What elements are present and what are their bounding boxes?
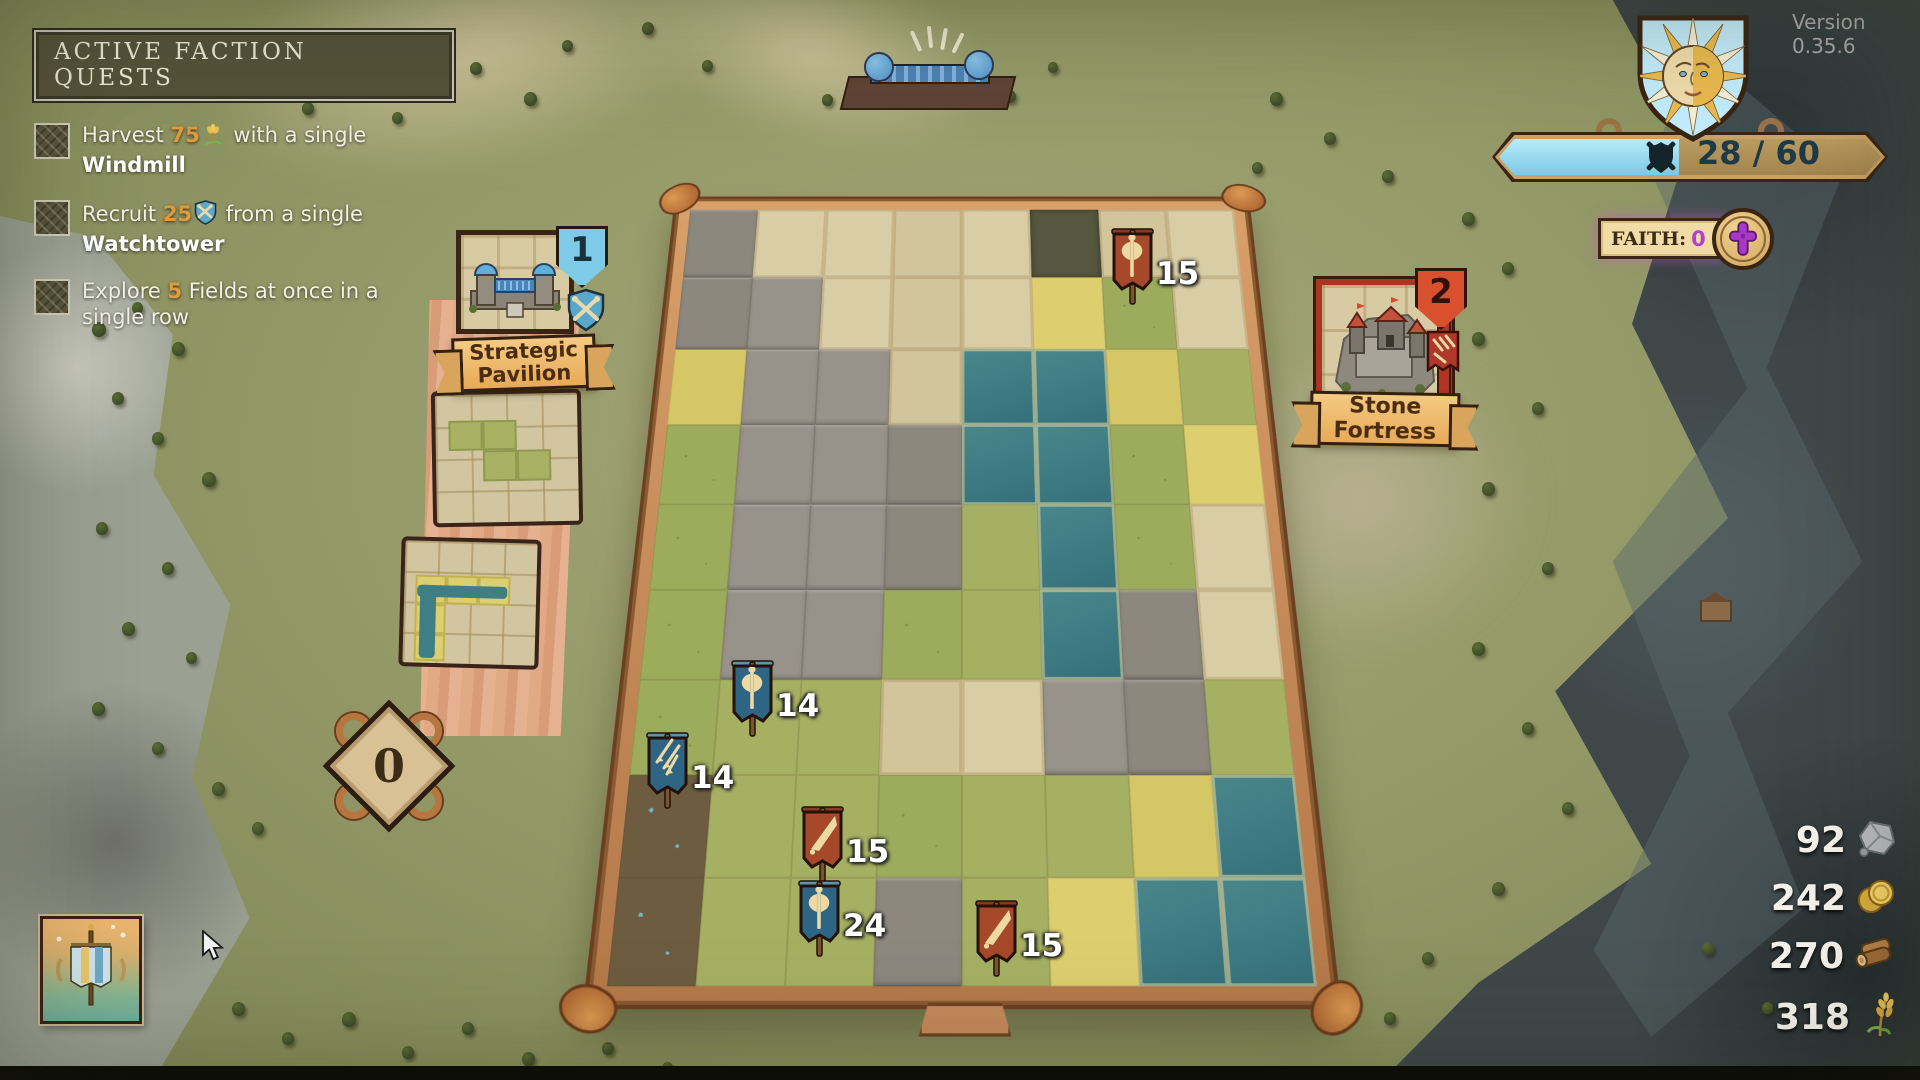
red-pennant-arrows-icon [1426, 330, 1460, 382]
board-tile-grass[interactable] [640, 589, 728, 679]
board-tile-unexplored[interactable] [753, 210, 826, 278]
unit-count: 14 [691, 760, 734, 796]
board-tile-water[interactable] [962, 425, 1038, 505]
quest-text: Explore [82, 279, 167, 303]
tree-icon [186, 652, 197, 664]
quest-text-block: Harvest 75 with a single Windmill [82, 123, 412, 178]
board-tile-mountain[interactable] [815, 349, 891, 425]
board-tile-mountain[interactable] [886, 425, 962, 505]
board-tile-mountain[interactable] [1123, 680, 1211, 776]
tree-icon [602, 1042, 614, 1055]
board-tile-water[interactable] [1036, 425, 1114, 505]
unit-count: 15 [1156, 256, 1199, 292]
tree-icon [172, 342, 185, 356]
board-tile-water[interactable] [962, 349, 1036, 425]
board-tile-grass[interactable] [962, 775, 1048, 877]
quest-amount: 5 [167, 279, 182, 303]
board-tile-mountain[interactable] [1118, 589, 1203, 679]
tree-icon [162, 562, 174, 575]
board-tile-camp[interactable] [607, 877, 705, 986]
board-tile-grass[interactable] [1045, 775, 1134, 877]
build-card-name: Stone Fortress [1313, 393, 1458, 446]
unit-banner-sword[interactable]: 15 [970, 892, 1080, 984]
unit-banner-axe[interactable]: 24 [793, 872, 903, 964]
letterbox-bar [0, 1066, 1920, 1080]
quest-checkbox[interactable] [34, 123, 70, 159]
tree-icon [282, 1032, 294, 1045]
board-tile-mountain[interactable] [884, 505, 962, 590]
tree-icon [462, 1022, 474, 1035]
board-tile-field[interactable] [1105, 349, 1183, 425]
unit-count: 15 [1020, 928, 1063, 964]
board-tile-unexplored[interactable] [822, 210, 894, 278]
quest-item-explore: Explore 5 Fields at once in a single row [34, 279, 454, 330]
resource-wheat: 318 [1775, 992, 1898, 1042]
tile-preview-river[interactable] [398, 536, 541, 670]
board-tile-unexplored[interactable] [888, 349, 962, 425]
blue-shield-clubs-icon [566, 288, 606, 338]
tile-queue-count: 0 [342, 719, 436, 813]
board-tile-unexplored[interactable] [962, 680, 1045, 776]
quest-text-block: Explore 5 Fields at once in a single row [82, 279, 412, 330]
tree-icon [252, 822, 264, 835]
axe-banner-icon [1106, 220, 1159, 308]
wood-log-icon [1852, 932, 1898, 980]
arrows-banner-icon [641, 724, 694, 812]
board-tile-unexplored[interactable] [1196, 589, 1284, 679]
resource-gold: 242 [1771, 874, 1898, 922]
quest-text: with a single [227, 123, 367, 147]
board-tile-unexplored[interactable] [962, 278, 1034, 350]
game-board [587, 0, 1337, 1005]
stone-icon [1854, 816, 1898, 864]
game-screen: 151414152415 ACTIVE FACTION QUESTS Harve… [0, 0, 1920, 1080]
board-tile-water[interactable] [1134, 877, 1229, 986]
quest-item-harvest: Harvest 75 with a single Windmill [34, 123, 454, 178]
board-tile-grass[interactable] [1204, 680, 1295, 776]
tree-icon [1562, 802, 1574, 815]
frame-crest [919, 1003, 1012, 1037]
quest-amount: 75 [171, 123, 200, 147]
resource-value: 270 [1769, 936, 1844, 977]
palace-building [838, 30, 1018, 120]
tree-icon [1422, 952, 1434, 965]
unit-banner-axe[interactable]: 15 [1106, 220, 1216, 312]
tree-icon [1532, 402, 1544, 415]
tree-icon [562, 40, 573, 52]
board-tile-grass[interactable] [1114, 505, 1197, 590]
tree-icon [152, 742, 164, 755]
unit-count: 24 [843, 908, 886, 944]
board-tile-grass[interactable] [1177, 349, 1257, 425]
board-grid [607, 210, 1317, 987]
wheat-icon [1858, 992, 1898, 1042]
tree-icon [212, 782, 225, 796]
tree-icon [1542, 562, 1554, 575]
board-tile-grass[interactable] [962, 589, 1043, 679]
tree-icon [202, 472, 216, 487]
resource-value: 92 [1796, 820, 1846, 861]
cross-icon[interactable] [1712, 208, 1774, 270]
board-tile-grass[interactable] [962, 505, 1040, 590]
version-label: Version 0.35.6 [1792, 10, 1920, 58]
tree-icon [1522, 722, 1534, 735]
tree-icon [1762, 1002, 1773, 1014]
board-tile-mountain[interactable] [683, 210, 758, 278]
resource-wood: 270 [1769, 932, 1898, 980]
board-tile-mountain[interactable] [741, 349, 819, 425]
board-tile-grass[interactable] [1109, 425, 1189, 505]
quest-amount: 25 [163, 202, 192, 226]
tile-preview-grass[interactable] [431, 389, 583, 528]
board-tile-field[interactable] [667, 349, 747, 425]
faith-value: 0 [1691, 227, 1706, 251]
tree-icon [122, 622, 135, 636]
board-frame [587, 199, 1337, 1005]
quest-panel: ACTIVE FACTION QUESTS Harvest 75 with a … [34, 30, 454, 331]
tile-queue-counter: 0 [342, 719, 436, 813]
board-tile-unexplored[interactable] [819, 278, 893, 350]
quest-text-block: Recruit 25 from a single Watchtower [82, 200, 363, 257]
tree-icon [1382, 170, 1394, 183]
build-card-name: Strategic Pavilion [454, 338, 593, 388]
faith-plaque: FAITH: 0 [1598, 218, 1728, 259]
tree-icon [522, 1052, 535, 1066]
gold-coins-icon [1854, 874, 1898, 922]
quest-checkbox[interactable] [34, 279, 70, 315]
cursor-icon [200, 930, 228, 968]
quest-target: Windmill [82, 153, 186, 177]
tree-icon [232, 1002, 245, 1016]
tree-icon [152, 432, 164, 445]
tree-icon [524, 92, 537, 106]
sword-banner-icon [970, 892, 1023, 980]
board-tile-field[interactable] [1032, 278, 1106, 350]
board-tile-water[interactable] [1040, 589, 1123, 679]
resource-value: 318 [1775, 997, 1850, 1038]
board-tile-unexplored[interactable] [1190, 505, 1275, 590]
board-tile-mountain[interactable] [810, 425, 888, 505]
board-tile-mountain[interactable] [675, 278, 752, 350]
tree-icon [96, 522, 108, 535]
recruit-shield-icon [194, 200, 217, 232]
board-tile-grass[interactable] [650, 505, 735, 590]
tree-icon [1702, 942, 1714, 955]
tree-icon [342, 1012, 356, 1027]
tree-icon [1492, 882, 1505, 896]
board-tile-grass[interactable] [881, 589, 962, 679]
unit-count: 14 [776, 688, 819, 724]
tree-icon [1472, 642, 1485, 656]
quest-text: Harvest [82, 123, 171, 147]
board-tile-field[interactable] [1128, 775, 1219, 877]
build-card-name-ribbon: Stone Fortress [1310, 391, 1461, 448]
board-tile-grass[interactable] [696, 877, 791, 986]
resource-stone: 92 [1796, 816, 1898, 864]
board-tile-mountain[interactable] [734, 425, 814, 505]
board-tile-unexplored[interactable] [879, 680, 962, 776]
faction-banner-icon[interactable] [40, 916, 142, 1024]
tree-icon [1462, 212, 1475, 226]
build-card-name-ribbon: Strategic Pavilion [451, 334, 597, 393]
board-tile-water[interactable] [1034, 349, 1110, 425]
quest-item-recruit: Recruit 25 from a single Watchtower [34, 200, 454, 257]
board-tile-grass[interactable] [659, 425, 741, 505]
tree-icon [1502, 262, 1514, 275]
unit-banner-arrows[interactable]: 14 [641, 724, 751, 816]
board-tile-rocky-forest[interactable] [1030, 210, 1102, 278]
board-tile-unexplored[interactable] [890, 278, 962, 350]
board-tile-water[interactable] [1211, 775, 1305, 877]
board-tile-field[interactable] [1183, 425, 1265, 505]
faith-label: FAITH: [1611, 228, 1686, 250]
tree-icon [1384, 1012, 1396, 1025]
board-tile-water[interactable] [1219, 877, 1317, 986]
tree-icon [92, 702, 105, 716]
axe-banner-icon [793, 872, 846, 960]
board-tile-mountain[interactable] [1043, 680, 1129, 776]
small-hut [1700, 600, 1732, 622]
quest-panel-title: ACTIVE FACTION QUESTS [34, 30, 454, 101]
tree-icon [1482, 482, 1495, 496]
tree-icon [402, 1046, 414, 1059]
board-tile-mountain[interactable] [728, 505, 811, 590]
tree-icon [470, 62, 482, 75]
board-tile-water[interactable] [1038, 505, 1118, 590]
tree-icon [112, 392, 124, 405]
quest-text: Recruit [82, 202, 163, 226]
quest-target: Watchtower [82, 232, 363, 258]
unit-count: 15 [846, 834, 889, 870]
board-tile-mountain[interactable] [747, 278, 823, 350]
wheat-icon [202, 124, 225, 153]
resource-value: 242 [1771, 878, 1846, 919]
tree-icon [1472, 332, 1485, 346]
board-tile-mountain[interactable] [806, 505, 886, 590]
sun-emblem [1628, 8, 1758, 152]
board-tile-unexplored[interactable] [892, 210, 962, 278]
board-tile-unexplored[interactable] [962, 210, 1032, 278]
quest-checkbox[interactable] [34, 200, 70, 236]
quest-text: from a single [219, 202, 363, 226]
